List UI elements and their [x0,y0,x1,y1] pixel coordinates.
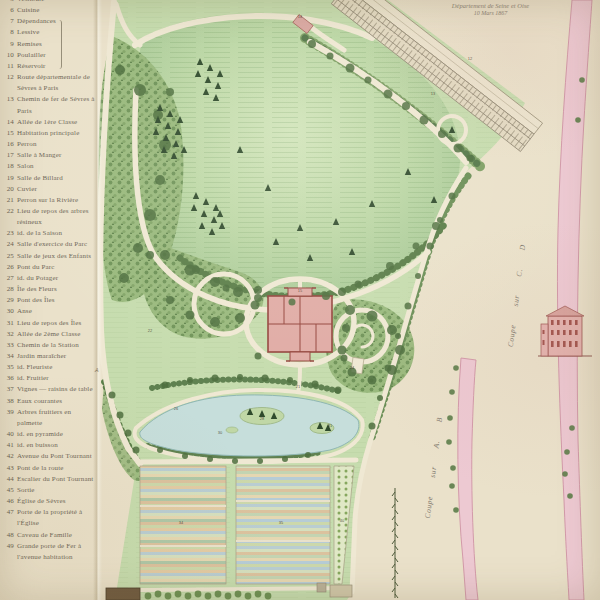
legend-item: 27 id. du Potager [3,273,98,284]
legend-item-number: 30 [3,306,14,317]
legend-item-label: Sortie [17,485,98,496]
legend-item: 15 Habitation principale [3,128,98,139]
legend-item: 36 id. Fruitier [3,373,98,384]
exit-building [106,588,140,600]
legend-item-number: 33 [3,340,14,351]
legend-item-label: Île des Fleurs [17,284,98,295]
legend-item-number: 26 [3,262,14,273]
legend-item: 32 Allée de 2ème Classe [3,329,98,340]
legend-item: 16 Perron [3,139,98,150]
legend-item: 17 Salle à Manger [3,150,98,161]
legend-item: 20 Cuvier [3,184,98,195]
plan-number: 31 [328,423,332,428]
legend-brace [57,20,62,69]
legend-item-label: Lieu de repos des arbres résineux [17,206,98,228]
legend-item-label: id. en buisson [17,440,98,451]
legend-item-label: Pont du Parc [17,262,98,273]
legend-item-label: Chemin de la Station [17,340,98,351]
legend-item: 13 Chemin de fer de Sèvres à Paris [3,94,98,116]
legend-item-number: 6 [3,5,14,16]
legend-item-number: 8 [3,27,14,38]
legend-item: 14 Allée de 1ère Classe [3,117,98,128]
legend-item: 10 Poulailler [3,50,98,61]
legend-item-label: Salle à Manger [17,150,98,161]
legend-item: 21 Perron sur la Rivière [3,195,98,206]
legend-item-number: 44 [3,474,14,485]
legend-item: 38 Eaux courantes [3,396,98,407]
plan-number: 15 [298,288,302,293]
legend-item-number: 36 [3,373,14,384]
legend-item-number: 28 [3,284,14,295]
legend-item-number: 13 [3,94,14,116]
legend-item: 41 id. en buisson [3,440,98,451]
legend-item-number: 27 [3,273,14,284]
plan-number: 26 [174,406,178,411]
legend-item-label: Arbres fruitiers en palmette [17,407,98,429]
legend-item-number: 24 [3,239,14,250]
coupe-ab-label: Coupe sur A. B [423,416,444,518]
legend-item: 49 Grande porte de Fer à l'avenue habita… [3,541,98,563]
legend-item: 25 Salle de jeux des Enfants [3,251,98,262]
plan-number: 40 [340,518,344,523]
legend-item: 46 Église de Sèvres [3,496,98,507]
legend-item-label: Route départementale de Sèvres à Paris [17,72,98,94]
legend-item-number: 43 [3,463,14,474]
legend-item-label: Escalier du Pont Tournant [17,474,98,485]
legend-item-number: 37 [3,384,14,395]
shed [330,585,352,597]
map-title: Département de Seine et Oise [418,2,563,10]
legend-item-number: 22 [3,206,14,228]
legend-item-number: 48 [3,530,14,541]
legend-item: 31 Lieu de repos des Îles [3,318,98,329]
legend-item-number: 46 [3,496,14,507]
legend-item-label: Vignes — raisins de table [17,384,98,395]
legend-item-label: id. du Potager [17,273,98,284]
legend-item-label: Lieu de repos des Îles [17,318,98,329]
title-block: Département de Seine et Oise 10 Mars 186… [418,2,563,17]
legend: 5 Vestibule 6 Cuisine 7 Dépendances 8 Le… [0,0,98,563]
legend-item: 30 Anse [3,306,98,317]
legend-item: 37 Vignes — raisins de table [3,384,98,395]
legend-item: 18 Salon [3,161,98,172]
legend-item: 48 Caveau de Famille [3,530,98,541]
legend-item-number: 18 [3,161,14,172]
legend-item-label: id. en pyramide [17,429,98,440]
legend-item: 19 Salle de Billard [3,173,98,184]
legend-item: 6 Cuisine [3,5,98,16]
plan-number: 12 [468,56,472,61]
legend-item-number: 12 [3,72,14,94]
legend-item-label: Avenue du Pont Tournant [17,451,98,462]
legend-item-number: 20 [3,184,14,195]
map-date: 10 Mars 1867 [418,10,563,17]
plan-number: 21 [296,384,300,389]
legend-item: 24 Salle d'exercice du Parc [3,239,98,250]
legend-item-number: 7 [3,16,14,27]
plan-number: 14 [298,14,302,19]
legend-item-number: 15 [3,128,14,139]
legend-item-label: id. Fruitier [17,373,98,384]
legend-item-number: 23 [3,228,14,239]
legend-item-label: Pont des Îles [17,295,98,306]
legend-item-label: Grande porte de Fer à l'avenue habitatio… [17,541,98,563]
legend-item: 39 Arbres fruitiers en palmette [3,407,98,429]
legend-item: 45 Sortie [3,485,98,496]
legend-item-number: 49 [3,541,14,563]
legend-item-label: Perron sur la Rivière [17,195,98,206]
legend-item: 9 Remises [3,39,98,50]
legend-item: 26 Pont du Parc [3,262,98,273]
legend-item-number: 21 [3,195,14,206]
legend-item: 35 id. Fleuriste [3,362,98,373]
legend-item-label: Pont de la route [17,463,98,474]
legend-item-number: 9 [3,39,14,50]
legend-item: 12 Route départementale de Sèvres à Pari… [3,72,98,94]
legend-item-number: 31 [3,318,14,329]
legend-item-number: 11 [3,61,14,72]
plan-number: 22 [148,328,152,333]
legend-item-label: Eaux courantes [17,396,98,407]
legend-item-number: 39 [3,407,14,429]
plan-number: 24 [350,365,354,370]
legend-item: 22 Lieu de repos des arbres résineux [3,206,98,228]
legend-item-label: Habitation principale [17,128,98,139]
legend-item-number: 38 [3,396,14,407]
plan-number: 34 [179,520,183,525]
plan-number: 13 [431,91,435,96]
legend-item-label: Salle d'exercice du Parc [17,239,98,250]
legend-item-label: Cuisine [17,5,98,16]
legend-item-label: Salle de jeux des Enfants [17,251,98,262]
legend-item-number: 29 [3,295,14,306]
legend-item: 47 Porte de la propriété à l'Église [3,507,98,529]
poplar-tree [392,488,398,598]
legend-item-number: 42 [3,451,14,462]
legend-item-label: Salle de Billard [17,173,98,184]
section-ab-strip [458,358,478,600]
legend-item-number: 47 [3,507,14,529]
legend-item-label: Chemin de fer de Sèvres à Paris [17,94,98,116]
section-cd-strip [557,0,592,600]
legend-item-number: 45 [3,485,14,496]
legend-item: 33 Chemin de la Station [3,340,98,351]
legend-item: 34 Jardin maraîcher [3,351,98,362]
legend-item: 28 Île des Fleurs [3,284,98,295]
legend-item-label: Allée de 1ère Classe [17,117,98,128]
plan-number: 35 [279,520,283,525]
legend-item-number: 40 [3,429,14,440]
legend-item: 43 Pont de la route [3,463,98,474]
legend-item: 11 Réservoir [3,61,98,72]
coupe-cd-label: Coupe sur C. D [506,244,528,348]
garden-plots [140,466,354,584]
legend-item-label: Jardin maraîcher [17,351,98,362]
legend-item-number: 41 [3,440,14,451]
legend-item: 7 Dépendances [3,16,98,27]
legend-item-label: Anse [17,306,98,317]
plan-number: 30 [218,430,222,435]
legend-item-number: 19 [3,173,14,184]
legend-item-label: Cuvier [17,184,98,195]
legend-item: 44 Escalier du Pont Tournant [3,474,98,485]
legend-item-number: 25 [3,251,14,262]
legend-item-number: 35 [3,362,14,373]
legend-item: 23 id. de la Saison [3,228,98,239]
legend-item-label: Allée de 2ème Classe [17,329,98,340]
legend-item-number: 10 [3,50,14,61]
legend-item-label: Salon [17,161,98,172]
section-marker-a: A [95,367,99,373]
shed-small [317,583,326,592]
residence-floorplan [268,288,332,361]
legend-item-label: id. Fleuriste [17,362,98,373]
map-sheet: Coupe sur C. D Coupe sur A. B 5 Vestibul… [0,0,600,600]
church-elevation [538,306,592,356]
legend-item-number: 32 [3,329,14,340]
legend-item-number: 14 [3,117,14,128]
plan-number: 28 [260,416,264,421]
legend-item-label: Caveau de Famille [17,530,98,541]
legend-item: 29 Pont des Îles [3,295,98,306]
legend-item: 42 Avenue du Pont Tournant [3,451,98,462]
legend-item: 8 Lessive [3,27,98,38]
legend-item-label: Perron [17,139,98,150]
legend-item-number: 34 [3,351,14,362]
legend-item: 40 id. en pyramide [3,429,98,440]
legend-item-label: Église de Sèvres [17,496,98,507]
legend-item-number: 16 [3,139,14,150]
legend-item-label: id. de la Saison [17,228,98,239]
legend-item-label: Porte de la propriété à l'Église [17,507,98,529]
legend-item-number: 17 [3,150,14,161]
